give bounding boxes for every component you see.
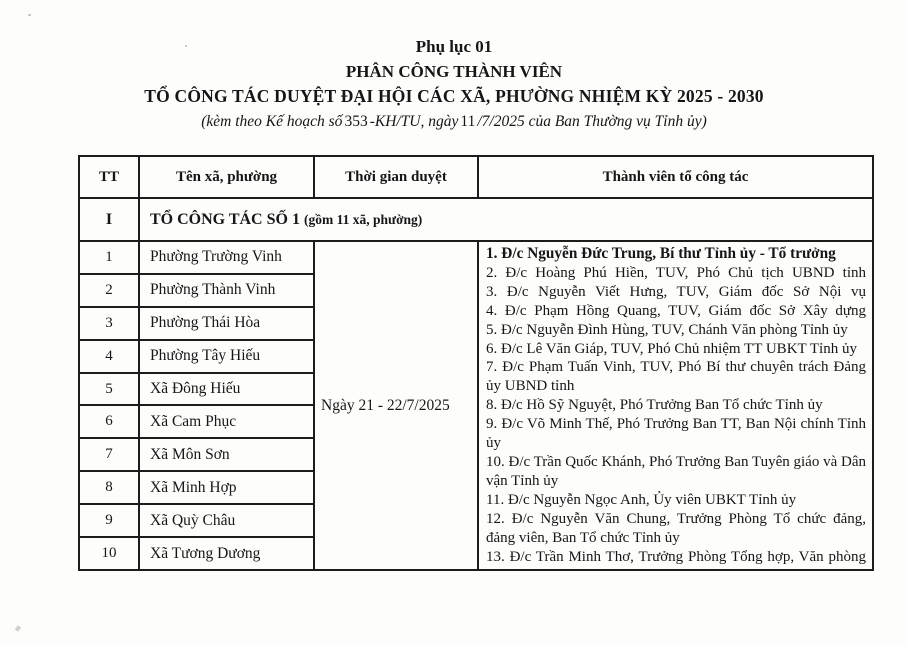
table-row: 1 Phường Trường Vinh Ngày 21 - 22/7/2025… [79, 241, 873, 274]
col-header-tt: TT [79, 156, 139, 198]
tt-cell: 7 [79, 438, 139, 471]
tt-cell: 4 [79, 340, 139, 373]
scanned-document-page: Phụ lục 01 PHÂN CÔNG THÀNH VIÊN TỔ CÔNG … [0, 0, 908, 645]
member-item: 9. Đ/c Võ Minh Thế, Phó Trưởng Ban TT, B… [486, 415, 866, 453]
member-item: 5. Đ/c Nguyễn Đình Hùng, TUV, Chánh Văn … [486, 321, 866, 340]
member-item: 10. Đ/c Trần Quốc Khánh, Phó Trưởng Ban … [486, 453, 866, 491]
document-title-line1: PHÂN CÔNG THÀNH VIÊN [0, 60, 908, 85]
members-list: 1. Đ/c Nguyễn Đức Trung, Bí thư Tỉnh ủy … [486, 245, 866, 567]
ward-name-cell: Xã Minh Hợp [139, 471, 314, 504]
appendix-label: Phụ lục 01 [0, 35, 908, 60]
ward-name-cell: Xã Tương Dương [139, 537, 314, 570]
scan-speck [15, 625, 21, 631]
col-header-ward-name: Tên xã, phường [139, 156, 314, 198]
member-item: 3. Đ/c Nguyễn Viết Hưng, TUV, Giám đốc S… [486, 283, 866, 302]
tt-cell: 2 [79, 274, 139, 307]
ward-name-cell: Xã Đông Hiếu [139, 373, 314, 406]
subtitle-mid: -KH/TU, ngày [370, 113, 459, 130]
document-subtitle: (kèm theo Kế hoạch số353-KH/TU, ngày11/7… [0, 110, 908, 135]
members-cell: 1. Đ/c Nguyễn Đức Trung, Bí thư Tỉnh ủy … [478, 241, 873, 570]
tt-cell: 9 [79, 504, 139, 537]
tt-cell: 8 [79, 471, 139, 504]
section-label: TỔ CÔNG TÁC SỐ 1 (gồm 11 xã, phường) [139, 198, 873, 241]
review-time-cell: Ngày 21 - 22/7/2025 [314, 241, 478, 570]
member-item: 8. Đ/c Hồ Sỹ Nguyệt, Phó Trưởng Ban Tổ c… [486, 396, 866, 415]
member-item: 13. Đ/c Trần Minh Thơ, Trưởng Phòng Tổng… [486, 548, 866, 568]
assignment-table: TT Tên xã, phường Thời gian duyệt Thành … [78, 155, 874, 571]
day-number: 11 [458, 113, 477, 130]
tt-cell: 10 [79, 537, 139, 570]
ward-name-cell: Phường Tây Hiếu [139, 340, 314, 373]
ward-name-cell: Phường Trường Vinh [139, 241, 314, 274]
member-item: 1. Đ/c Nguyễn Đức Trung, Bí thư Tỉnh ủy … [486, 245, 866, 264]
document-title-line2: TỔ CÔNG TÁC DUYỆT ĐẠI HỘI CÁC XÃ, PHƯỜNG… [0, 84, 908, 109]
plan-number: 353 [342, 113, 369, 130]
ward-name-cell: Phường Thái Hòa [139, 307, 314, 340]
scan-speck [28, 14, 31, 16]
tt-cell: 6 [79, 405, 139, 438]
section-subtitle: (gồm 11 xã, phường) [304, 212, 422, 227]
ward-name-cell: Xã Cam Phục [139, 405, 314, 438]
member-item: 12. Đ/c Nguyễn Văn Chung, Trưởng Phòng T… [486, 510, 866, 548]
member-item: 2. Đ/c Hoàng Phú Hiền, TUV, Phó Chủ tịch… [486, 264, 866, 283]
document-header: Phụ lục 01 PHÂN CÔNG THÀNH VIÊN TỔ CÔNG … [0, 35, 908, 134]
section-numeral: I [79, 198, 139, 241]
col-header-review-time: Thời gian duyệt [314, 156, 478, 198]
ward-name-cell: Xã Quỳ Châu [139, 504, 314, 537]
ward-name-cell: Phường Thành Vinh [139, 274, 314, 307]
table-header-row: TT Tên xã, phường Thời gian duyệt Thành … [79, 156, 873, 198]
member-item: 7. Đ/c Phạm Tuấn Vinh, TUV, Phó Bí thư c… [486, 358, 866, 396]
subtitle-suffix: /7/2025 của Ban Thường vụ Tỉnh ủy) [477, 113, 706, 130]
member-item: 4. Đ/c Phạm Hồng Quang, TUV, Giám đốc Sở… [486, 302, 866, 321]
member-item: 11. Đ/c Nguyễn Ngọc Anh, Ủy viên UBKT Tỉ… [486, 491, 866, 510]
subtitle-prefix: (kèm theo Kế hoạch số [201, 113, 342, 130]
col-header-members: Thành viên tổ công tác [478, 156, 873, 198]
section-row: I TỔ CÔNG TÁC SỐ 1 (gồm 11 xã, phường) [79, 198, 873, 241]
ward-name-cell: Xã Môn Sơn [139, 438, 314, 471]
tt-cell: 5 [79, 373, 139, 406]
member-item: 6. Đ/c Lê Văn Giáp, TUV, Phó Chủ nhiệm T… [486, 340, 866, 359]
tt-cell: 3 [79, 307, 139, 340]
tt-cell: 1 [79, 241, 139, 274]
section-title: TỔ CÔNG TÁC SỐ 1 [150, 211, 300, 228]
